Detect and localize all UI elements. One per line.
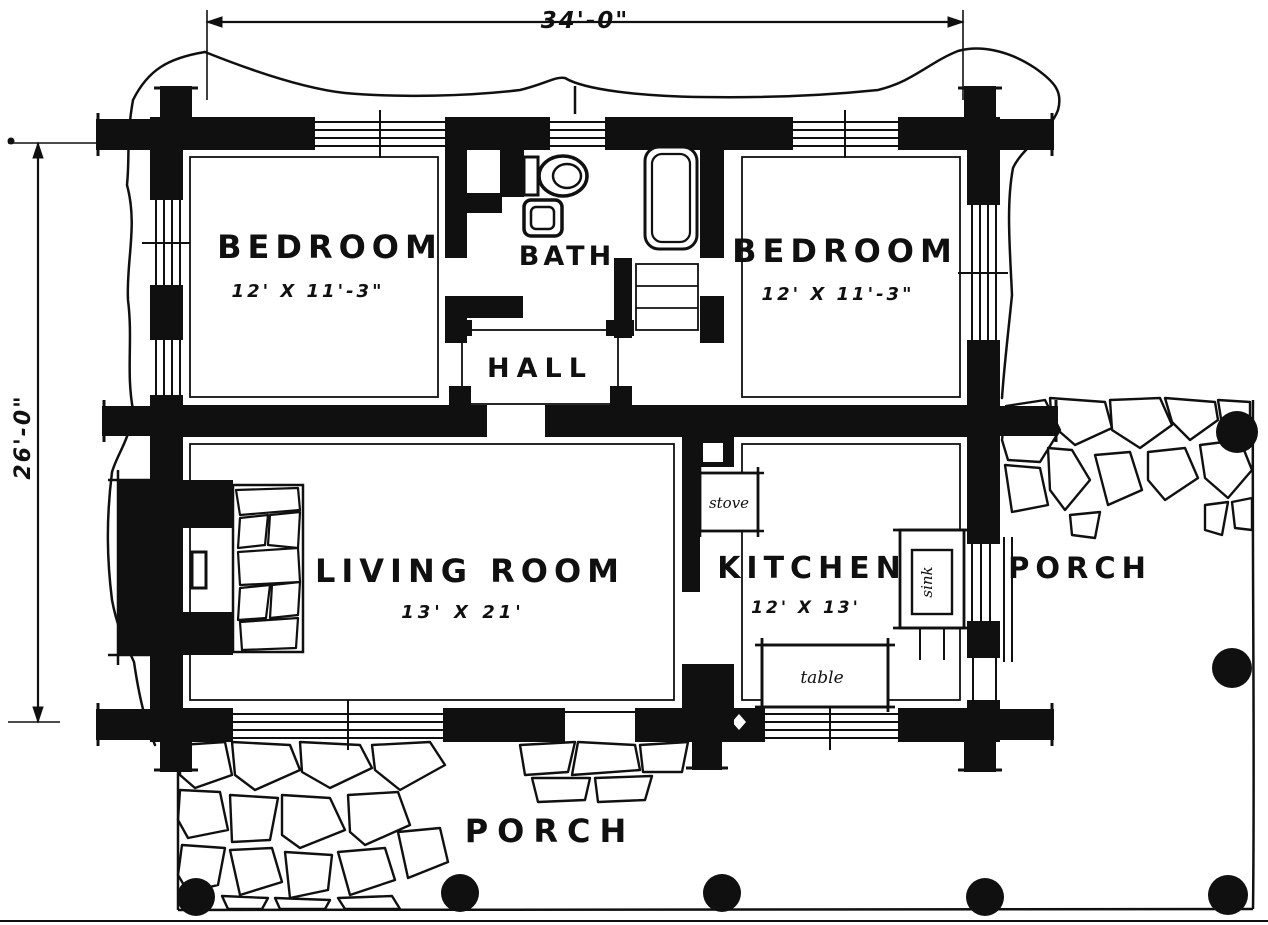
linen-closet [636,264,698,330]
bath-sink [524,200,562,236]
porch-post [1212,648,1252,688]
bedroom-right-outline [742,157,960,397]
dim-width-label: 34'-0" [541,8,630,34]
porch-post [1208,875,1248,915]
porch-post [441,874,479,912]
bathtub [645,147,697,249]
bedroom-left-label: BEDROOM [217,228,443,266]
bedroom-right-label: BEDROOM [732,232,958,270]
window-top-right [788,110,903,158]
porch-post [1216,411,1258,453]
porch-post [177,878,215,916]
chimney-niche [703,443,723,462]
stove-label: stove [709,494,749,512]
window-kitchen-side [967,540,1000,625]
hearth-stones [236,488,300,650]
window-top-left [310,110,450,158]
window-right-bedroom [958,200,1008,345]
kitchen-size: 12' X 13' [751,598,861,618]
bath-fixtures [524,147,697,249]
window-left-lower [150,335,183,400]
porch-post [966,878,1004,916]
window-top-bath [545,117,610,150]
door-step-stones [520,742,688,802]
fireplace [108,470,303,665]
table-label: table [800,668,843,688]
porch-side-label: PORCH [1008,551,1152,585]
door-kitchen-to-porch [973,537,1012,700]
floor-plan-drawing: 34'-0" 26'-0" BEDROOM 12' X 11'-3" BATH … [0,0,1268,925]
living-room-label: LIVING ROOM [315,552,625,590]
window-left-bedroom [142,195,190,290]
bedroom-left-size: 12' X 11'-3" [232,281,385,302]
floor-plan: 34'-0" 26'-0" BEDROOM 12' X 11'-3" BATH … [0,0,1268,925]
hall-label: HALL [487,353,593,384]
toilet [524,156,587,196]
kitchen-label: KITCHEN [717,551,907,586]
living-room-size: 13' X 21' [401,602,525,623]
porch-front-label: PORCH [465,812,636,850]
sink-label: sink [918,566,936,597]
bedroom-left-outline [190,157,438,397]
fireplace-flue [192,552,206,588]
porch-post [703,874,741,912]
dim-height-label: 26'-0" [11,394,36,479]
bedroom-right-size: 12' X 11'-3" [762,284,915,305]
side-porch-right-edge [1253,400,1254,909]
bath-label: BATH [519,241,615,272]
front-porch-stones [178,742,448,909]
